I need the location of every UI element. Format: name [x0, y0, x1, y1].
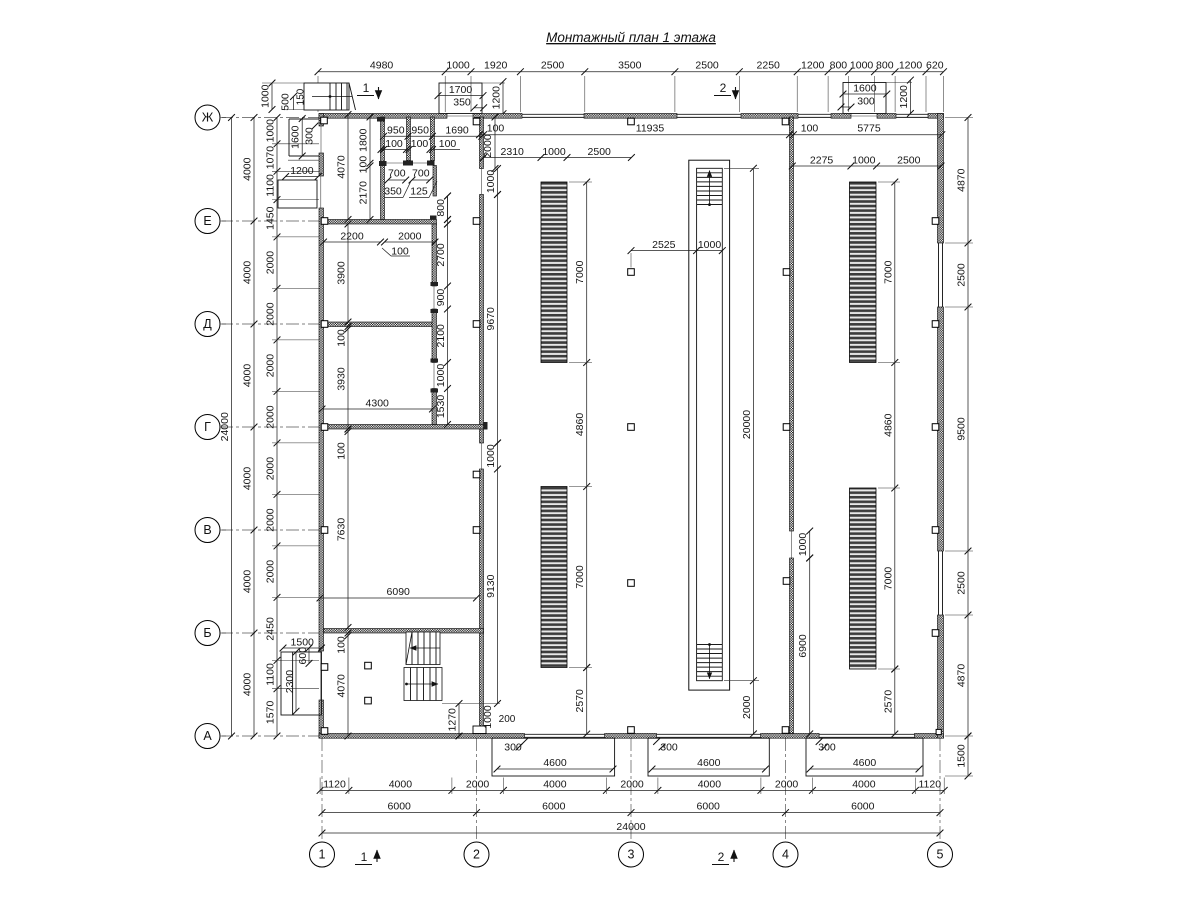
svg-text:3: 3 [628, 848, 635, 862]
svg-text:2310: 2310 [501, 146, 525, 158]
svg-text:4000: 4000 [242, 570, 254, 594]
svg-text:300: 300 [660, 742, 678, 754]
svg-text:2300: 2300 [284, 670, 296, 694]
svg-text:7000: 7000 [882, 567, 894, 591]
svg-text:4000: 4000 [389, 778, 413, 790]
svg-text:2450: 2450 [265, 617, 277, 641]
svg-text:2000: 2000 [265, 354, 277, 378]
svg-text:А: А [203, 729, 212, 743]
svg-text:100: 100 [336, 442, 348, 460]
svg-text:1100: 1100 [265, 663, 277, 686]
svg-text:2000: 2000 [265, 405, 277, 429]
svg-text:1690: 1690 [445, 125, 469, 137]
svg-text:3930: 3930 [336, 367, 348, 391]
svg-text:4000: 4000 [242, 673, 254, 697]
svg-text:950: 950 [387, 125, 405, 137]
svg-text:2000: 2000 [466, 778, 490, 790]
svg-text:7000: 7000 [574, 260, 586, 284]
svg-text:6090: 6090 [387, 586, 411, 598]
svg-text:4000: 4000 [852, 778, 876, 790]
svg-text:6000: 6000 [542, 801, 566, 813]
svg-text:4070: 4070 [336, 155, 348, 179]
svg-text:2: 2 [720, 81, 727, 95]
svg-text:150: 150 [296, 88, 307, 105]
svg-text:100: 100 [487, 123, 505, 135]
svg-text:Б: Б [203, 626, 211, 640]
svg-text:1: 1 [363, 81, 370, 95]
svg-text:4860: 4860 [882, 413, 894, 437]
svg-text:2500: 2500 [695, 60, 719, 72]
svg-text:200: 200 [499, 714, 516, 725]
svg-text:1000: 1000 [446, 60, 470, 72]
svg-text:7630: 7630 [336, 518, 348, 542]
svg-text:5: 5 [937, 848, 944, 862]
svg-text:1200: 1200 [491, 86, 503, 110]
svg-text:100: 100 [439, 138, 457, 150]
svg-text:4870: 4870 [956, 664, 968, 688]
svg-text:1600: 1600 [853, 82, 877, 94]
svg-text:300: 300 [818, 742, 836, 754]
svg-text:2100: 2100 [435, 324, 447, 348]
svg-text:9500: 9500 [956, 417, 968, 441]
svg-text:1000: 1000 [852, 155, 876, 167]
svg-text:100: 100 [801, 123, 819, 135]
svg-text:Е: Е [203, 214, 211, 228]
svg-text:4860: 4860 [574, 413, 586, 437]
svg-text:2: 2 [473, 848, 480, 862]
svg-text:1000: 1000 [485, 170, 497, 194]
svg-text:300: 300 [304, 127, 316, 145]
svg-text:В: В [203, 523, 211, 537]
svg-text:1200: 1200 [290, 165, 314, 177]
svg-text:2250: 2250 [757, 60, 781, 72]
svg-text:4870: 4870 [956, 168, 968, 192]
svg-text:2570: 2570 [574, 689, 586, 713]
svg-text:1120: 1120 [919, 778, 942, 790]
svg-text:1: 1 [319, 848, 326, 862]
svg-text:2000: 2000 [265, 560, 277, 584]
svg-text:Г: Г [204, 420, 211, 434]
svg-text:700: 700 [388, 168, 406, 180]
svg-text:2000: 2000 [741, 695, 753, 719]
svg-text:4000: 4000 [242, 261, 254, 285]
svg-text:100: 100 [358, 156, 370, 174]
svg-text:7000: 7000 [882, 260, 894, 284]
svg-text:1600: 1600 [290, 125, 302, 149]
svg-text:1500: 1500 [956, 744, 968, 768]
svg-text:1450: 1450 [265, 206, 277, 230]
svg-text:125: 125 [410, 186, 428, 198]
svg-text:4000: 4000 [242, 364, 254, 388]
svg-text:4600: 4600 [543, 757, 567, 769]
svg-text:2500: 2500 [588, 146, 612, 158]
svg-text:300: 300 [857, 96, 875, 108]
svg-text:2570: 2570 [882, 690, 894, 714]
svg-text:1000: 1000 [435, 364, 447, 388]
svg-text:1120: 1120 [323, 778, 346, 790]
svg-text:1000: 1000 [485, 444, 497, 468]
svg-text:6000: 6000 [388, 801, 412, 813]
svg-text:350: 350 [384, 186, 402, 198]
svg-text:1: 1 [361, 850, 368, 864]
svg-text:1070: 1070 [265, 146, 277, 170]
svg-text:6000: 6000 [851, 801, 875, 813]
svg-text:900: 900 [435, 289, 447, 307]
svg-text:Монтажный план 1 этажа: Монтажный план 1 этажа [546, 30, 716, 45]
svg-text:2000: 2000 [265, 508, 277, 532]
svg-text:2700: 2700 [435, 243, 447, 267]
svg-text:1200: 1200 [898, 85, 910, 109]
svg-text:4000: 4000 [543, 778, 567, 790]
svg-text:4300: 4300 [366, 398, 390, 410]
svg-text:4000: 4000 [698, 778, 722, 790]
svg-text:2000: 2000 [398, 231, 422, 243]
svg-text:700: 700 [412, 168, 430, 180]
svg-text:1700: 1700 [449, 84, 473, 96]
svg-text:20000: 20000 [741, 410, 753, 439]
svg-text:620: 620 [926, 60, 944, 72]
svg-text:1000: 1000 [542, 146, 566, 158]
svg-text:2000: 2000 [265, 251, 277, 275]
svg-text:2000: 2000 [620, 778, 644, 790]
svg-text:100: 100 [336, 636, 348, 654]
svg-text:11935: 11935 [636, 123, 665, 135]
svg-text:1000: 1000 [265, 119, 277, 143]
svg-text:1000: 1000 [260, 84, 272, 108]
svg-text:500: 500 [280, 93, 292, 111]
svg-text:2500: 2500 [956, 263, 968, 287]
svg-text:4600: 4600 [853, 757, 877, 769]
svg-text:100: 100 [385, 138, 403, 150]
svg-text:2500: 2500 [897, 155, 921, 167]
svg-text:9130: 9130 [485, 574, 497, 598]
svg-text:1000: 1000 [482, 705, 494, 729]
svg-text:800: 800 [876, 60, 894, 72]
svg-text:1200: 1200 [801, 60, 825, 72]
svg-text:1270: 1270 [447, 708, 459, 732]
svg-text:4070: 4070 [336, 674, 348, 698]
svg-text:2500: 2500 [956, 571, 968, 595]
svg-text:Д: Д [203, 317, 212, 331]
svg-text:9670: 9670 [485, 307, 497, 331]
svg-text:2000: 2000 [265, 457, 277, 481]
svg-text:2170: 2170 [358, 181, 370, 205]
svg-text:1000: 1000 [850, 60, 874, 72]
svg-text:4000: 4000 [242, 467, 254, 491]
svg-text:1200: 1200 [899, 60, 923, 72]
svg-text:4: 4 [782, 848, 789, 862]
svg-text:100: 100 [411, 138, 429, 150]
svg-text:6000: 6000 [697, 801, 721, 813]
svg-text:1920: 1920 [484, 60, 508, 72]
svg-text:800: 800 [830, 60, 848, 72]
svg-text:2000: 2000 [265, 302, 277, 326]
svg-text:800: 800 [435, 199, 447, 217]
svg-text:4600: 4600 [697, 757, 721, 769]
svg-text:2000: 2000 [775, 778, 799, 790]
svg-text:2275: 2275 [810, 155, 834, 167]
svg-text:1570: 1570 [265, 701, 277, 725]
svg-text:2200: 2200 [340, 231, 364, 243]
svg-text:24000: 24000 [616, 821, 645, 833]
svg-text:2500: 2500 [541, 60, 565, 72]
svg-text:1000: 1000 [698, 239, 722, 251]
svg-text:1800: 1800 [358, 128, 370, 152]
svg-text:24000: 24000 [219, 412, 231, 441]
svg-text:7000: 7000 [574, 565, 586, 589]
svg-text:4000: 4000 [242, 157, 254, 181]
svg-text:1100: 1100 [265, 174, 277, 197]
svg-text:2: 2 [718, 850, 725, 864]
svg-text:3900: 3900 [336, 261, 348, 285]
svg-text:100: 100 [336, 329, 348, 347]
svg-text:950: 950 [411, 125, 429, 137]
svg-text:5775: 5775 [857, 123, 881, 135]
svg-text:2525: 2525 [652, 239, 676, 251]
svg-text:1530: 1530 [435, 395, 447, 419]
svg-text:3500: 3500 [618, 60, 642, 72]
svg-text:6900: 6900 [797, 634, 809, 658]
svg-text:1000: 1000 [797, 533, 809, 557]
svg-text:4980: 4980 [370, 60, 394, 72]
svg-text:350: 350 [453, 96, 471, 108]
svg-text:Ж: Ж [202, 111, 214, 125]
svg-text:300: 300 [504, 742, 522, 754]
svg-text:2000: 2000 [482, 134, 494, 158]
